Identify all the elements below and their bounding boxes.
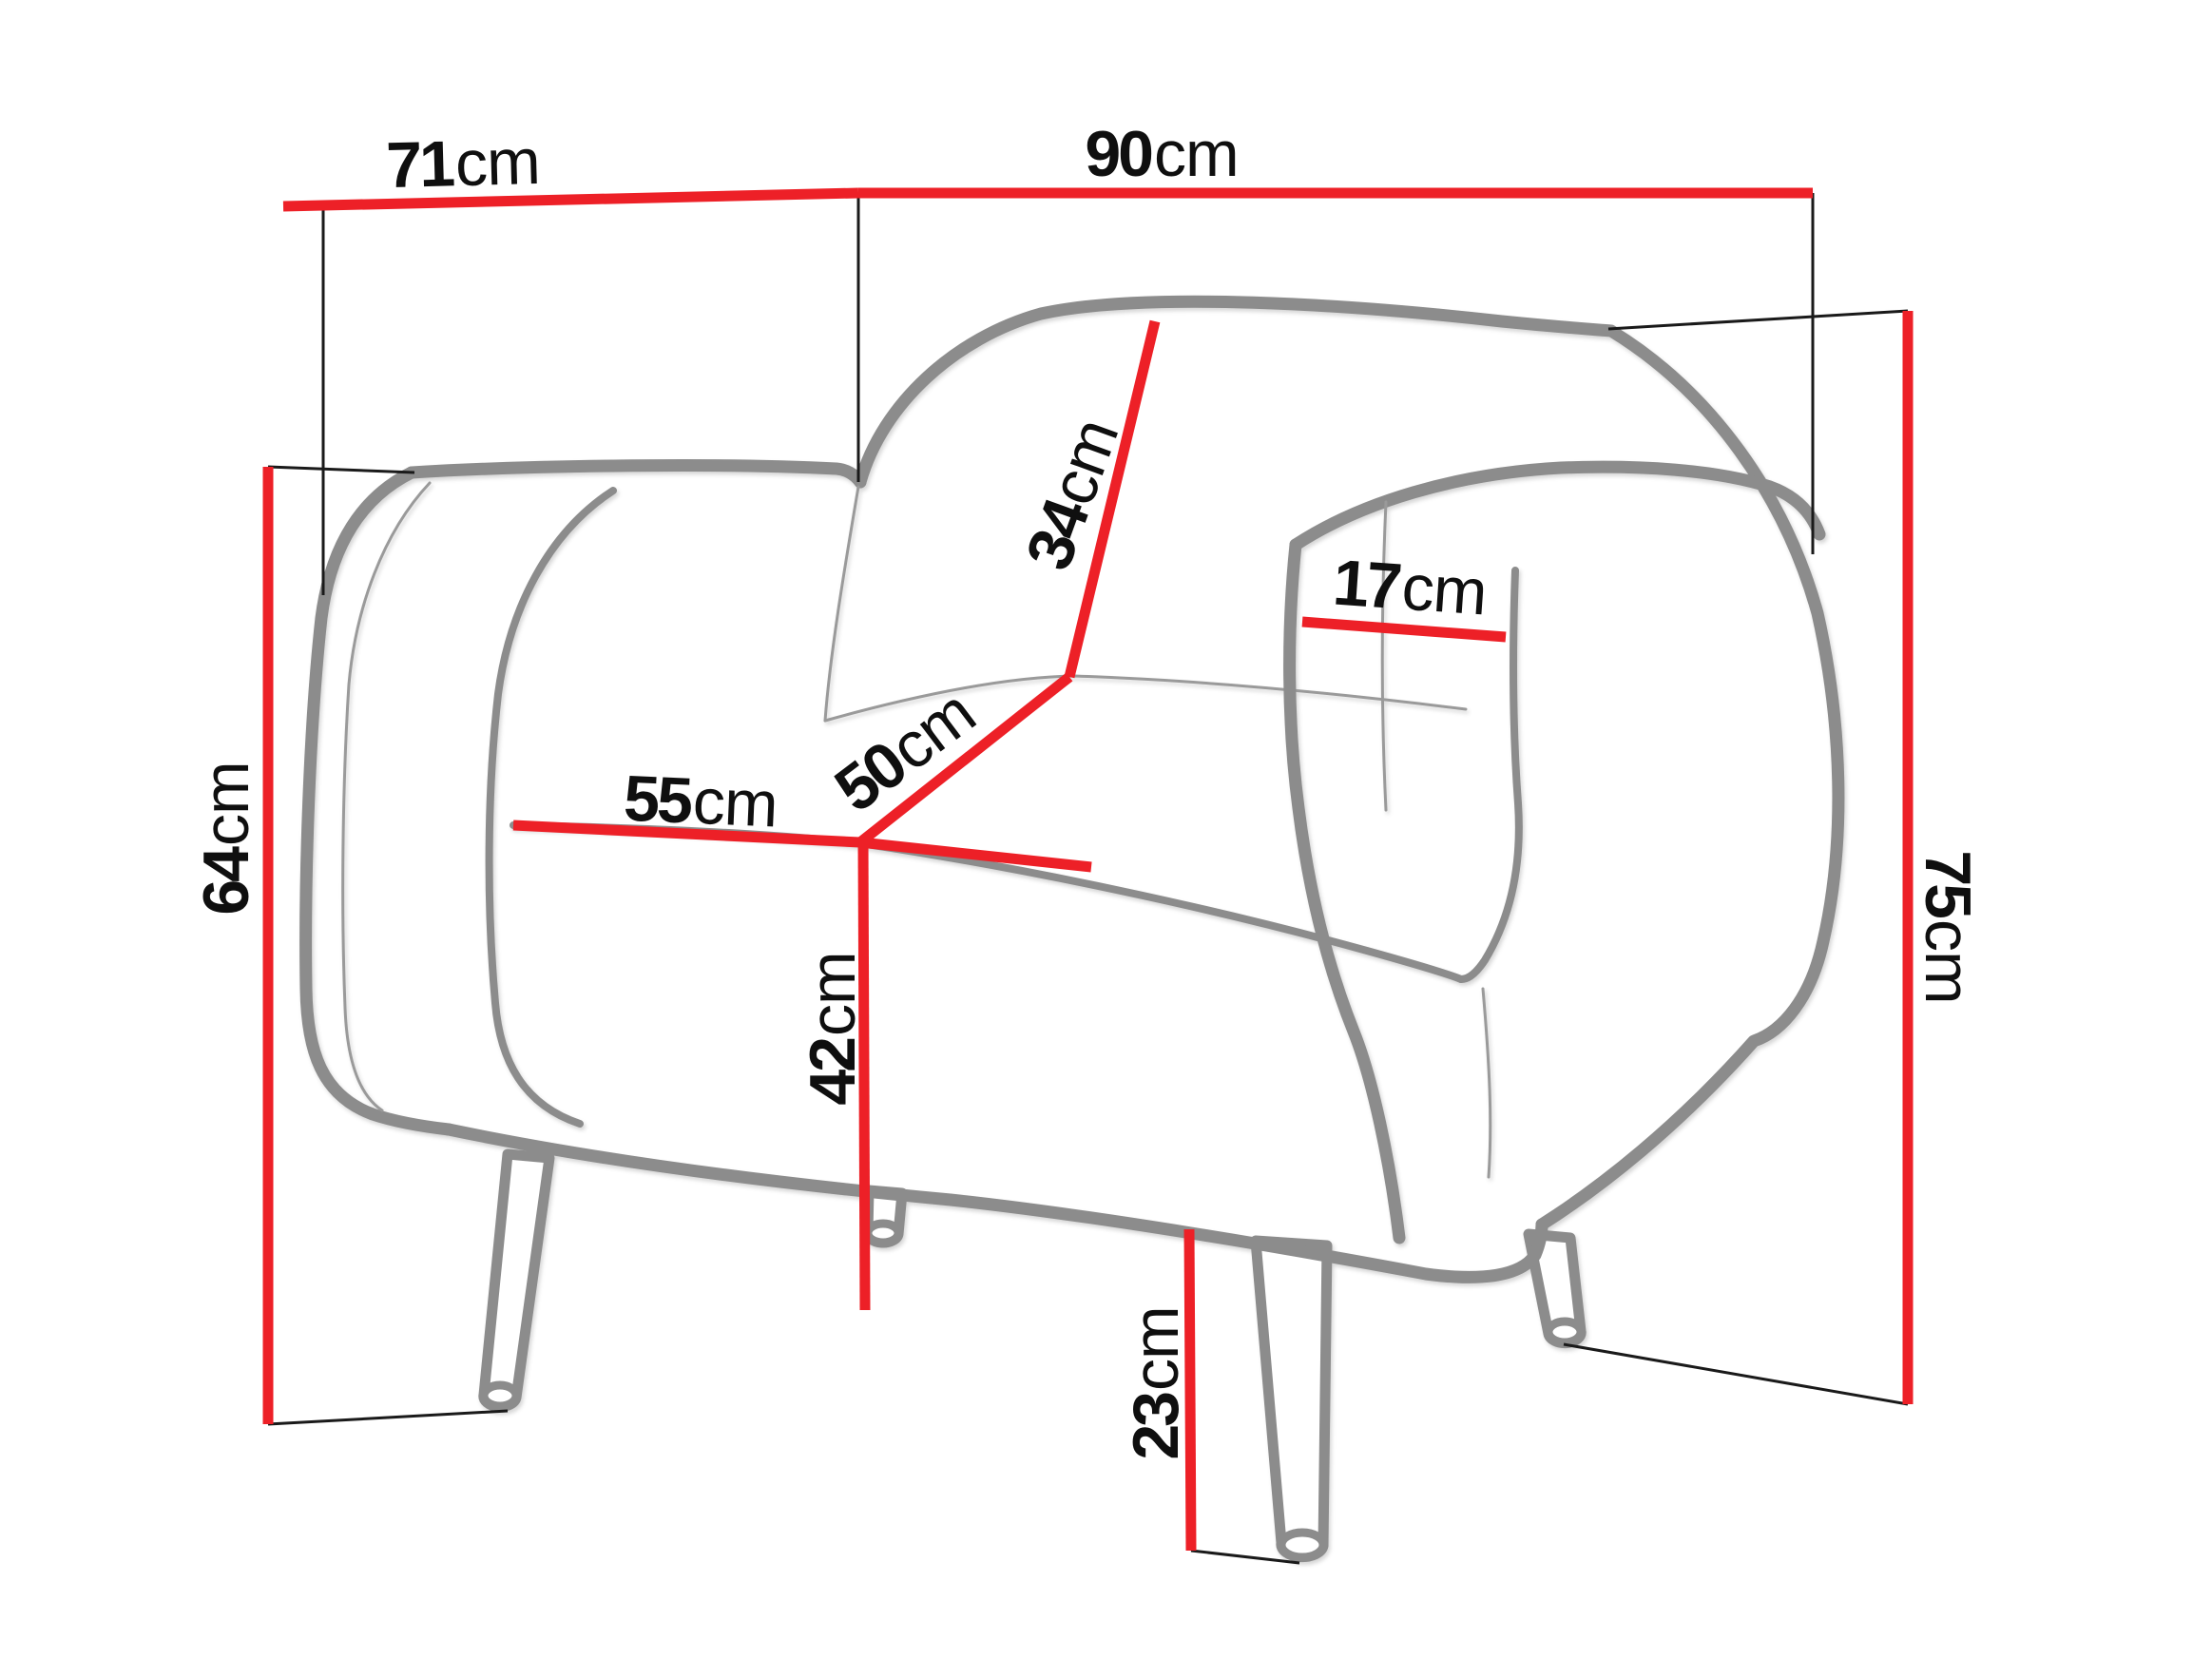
dim-unit-23: cm (1120, 1306, 1192, 1391)
dim-value-55: 55 (623, 762, 692, 838)
dim-unit-90: cm (1154, 118, 1239, 190)
dim-label-71cm: 71cm (385, 129, 540, 198)
chair-leg-front-right-cap (1281, 1533, 1323, 1557)
dim-unit-75: cm (1912, 919, 1984, 1004)
chair-back-left-crease (825, 487, 858, 721)
ref-line-64-top (268, 467, 414, 473)
dim-unit-71: cm (454, 125, 541, 200)
dim-label-75cm: 75cm (1915, 850, 1980, 1003)
chair-leg-back-right-cap (1548, 1321, 1581, 1342)
chair-bottom-front-edge (449, 1129, 1542, 1277)
dim-value-64: 64 (190, 849, 262, 916)
chair-leg-front-center-cap (868, 1224, 898, 1243)
chair-right-armrest-top-edge (1296, 467, 1819, 545)
dim-unit-64: cm (190, 762, 262, 846)
dim-value-42: 42 (797, 1039, 869, 1106)
dim-value-17: 17 (1331, 546, 1402, 623)
dim-unit-42: cm (797, 952, 869, 1036)
chair-left-armrest-top-edge (412, 466, 860, 482)
dim-label-64cm: 64cm (194, 762, 259, 915)
dim-label-23cm: 23cm (1124, 1306, 1188, 1459)
chair-leg-front-left (484, 1154, 549, 1407)
dim-label-55cm: 55cm (623, 766, 779, 838)
dim-unit-17: cm (1399, 551, 1489, 629)
chair-backrest-and-right-silhouette (860, 301, 1838, 1225)
dim-label-17cm: 17cm (1331, 550, 1489, 625)
armchair-diagram-svg (0, 0, 2212, 1659)
chair-leg-front-left-cap (484, 1385, 516, 1406)
ref-line-64-bottom (268, 1411, 508, 1424)
dim-label-42cm: 42cm (800, 952, 865, 1105)
dim-value-23: 23 (1120, 1394, 1192, 1460)
chair-left-armrest-inner-edge (490, 491, 613, 1124)
chair-left-armrest-crease (343, 483, 430, 1110)
chair-left-armrest-outer-edge (306, 473, 449, 1129)
dim-label-90cm: 90cm (1085, 122, 1238, 186)
chair-right-armrest-crease (1382, 502, 1386, 810)
dim-value-75: 75 (1912, 850, 1984, 916)
chair-front-right-crease (1483, 989, 1491, 1177)
dim-unit-55: cm (691, 765, 779, 841)
ref-line-75-top (1608, 311, 1908, 329)
dim-value-71: 71 (385, 127, 453, 202)
diagram-canvas: 71cm 90cm 64cm 75cm 55cm 50cm 34cm 17cm … (0, 0, 2212, 1659)
dim-value-90: 90 (1085, 118, 1151, 190)
chair-leg-front-right (1256, 1241, 1327, 1557)
ref-line-75-bottom (1564, 1344, 1908, 1404)
dim-line-71cm (283, 193, 858, 206)
